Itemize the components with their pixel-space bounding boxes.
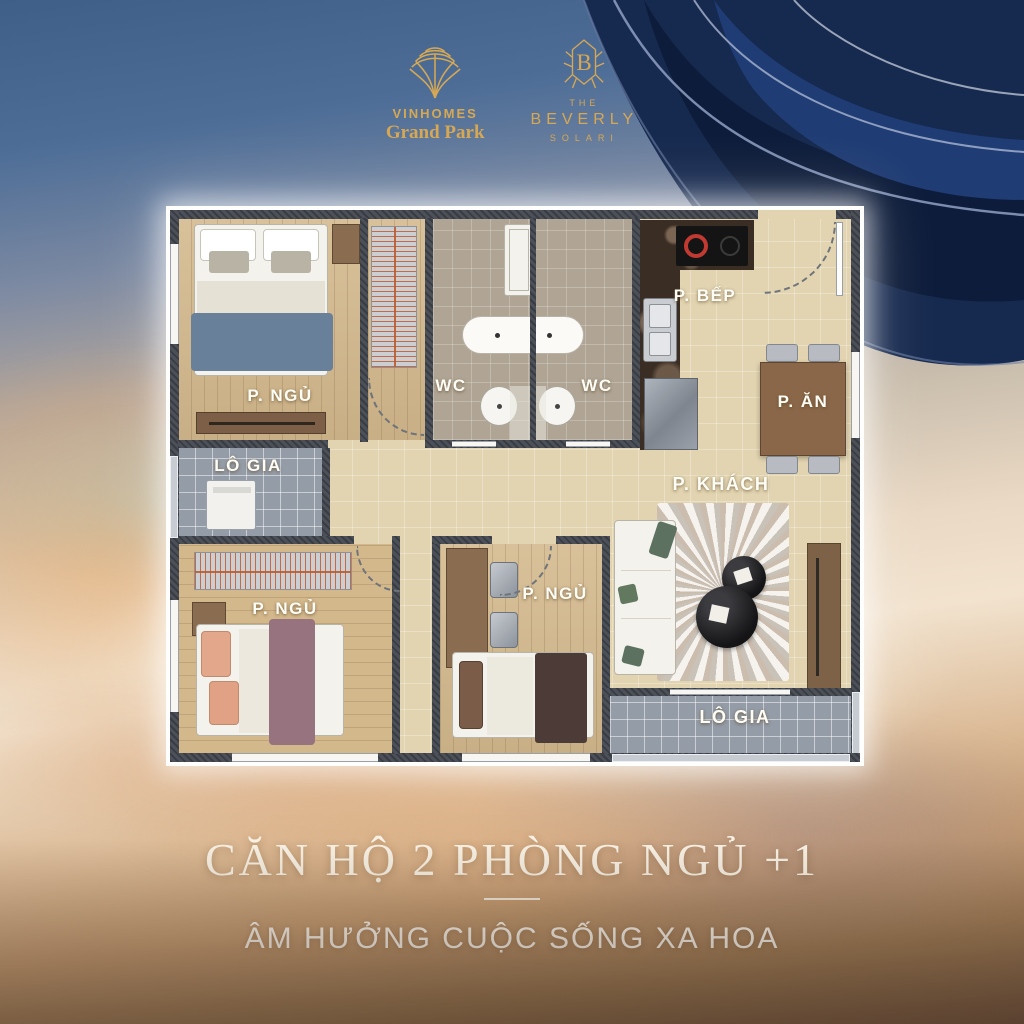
wardrobe-bedroom2 (194, 552, 352, 590)
wc-door-threshold-left (452, 441, 496, 447)
window-bedroom2 (170, 600, 179, 712)
label-loggia-left: LÔ GIA (186, 456, 310, 476)
washing-machine (206, 480, 256, 530)
beverly-monogram: B (577, 50, 592, 75)
dining-chair-2 (808, 344, 840, 362)
bed-single (452, 652, 594, 738)
wall-top (170, 210, 860, 219)
wall-bedroom2-top (178, 536, 354, 544)
wc-door-threshold-right (566, 441, 610, 447)
beverly-emblem-icon: B (561, 38, 607, 92)
label-loggia-right: LÔ GIA (675, 707, 795, 728)
entry-door-leaf (836, 222, 843, 296)
toilet-counter (510, 386, 546, 440)
label-wc-left: WC (428, 376, 474, 396)
railing-loggia-left (170, 456, 178, 538)
bed-double-2 (196, 624, 344, 736)
poster-subtitle: ÂM HƯỞNG CUỘC SỐNG XA HOA (0, 922, 1024, 956)
wall-bedroom3-right (602, 536, 610, 754)
wall-bedroom3-left (432, 536, 440, 754)
window-bedroom2-bottom (232, 753, 378, 762)
sofa (614, 520, 676, 675)
vanity-counter (462, 316, 584, 354)
vinhomes-logo: VINHOMES Grand Park (386, 38, 485, 144)
coffee-table-large (696, 586, 758, 648)
desk-chair-2 (490, 612, 518, 648)
title-divider (484, 898, 540, 900)
label-bedroom2: P. NGỦ (218, 599, 352, 619)
label-wc-right: WC (574, 376, 620, 396)
wall-bedroom3-top (432, 536, 492, 544)
wall-right (851, 210, 860, 762)
window-bedroom3-bottom (462, 753, 590, 762)
dining-chair-1 (766, 344, 798, 362)
loggia-slider (670, 689, 790, 695)
bed-double-1 (194, 224, 328, 376)
fridge (644, 378, 698, 450)
wall-wc-left (425, 218, 433, 442)
grand-park-wordmark: Grand Park (386, 122, 485, 144)
vinhomes-wordmark: VINHOMES (393, 106, 478, 121)
label-dining: P. ĂN (760, 392, 846, 412)
railing-loggia-right-bottom (612, 754, 850, 762)
floor-plan: P. NGỦ LÔ GIA WC WC P. BẾP P. ĂN P. KHÁC… (166, 206, 864, 766)
beverly-wordmark: BEVERLY (531, 111, 639, 129)
railing-loggia-right-side (852, 692, 860, 754)
label-bedroom1: P. NGỦ (210, 386, 350, 406)
solari-wordmark: SOLARI (550, 133, 619, 143)
wall-wc-divider (530, 218, 536, 442)
wall-bedroom1-right (360, 218, 368, 442)
nightstand-1 (332, 224, 360, 264)
dining-chair-3 (766, 456, 798, 474)
dresser-1 (196, 412, 326, 434)
wall-wc-right (632, 218, 640, 442)
wall-loggia-left-right (322, 448, 330, 544)
poster: VINHOMES Grand Park B THE BEVERLY SOLARI (0, 0, 1024, 1024)
dining-chair-4 (808, 456, 840, 474)
label-bedroom3: P. NGỦ (500, 584, 610, 604)
window-bedroom1 (170, 244, 179, 344)
kitchen-sink (643, 298, 677, 362)
poster-title: CĂN HỘ 2 PHÒNG NGỦ +1 (0, 833, 1024, 886)
beverly-logo: B THE BEVERLY SOLARI (531, 38, 639, 144)
label-living: P. KHÁCH (656, 474, 786, 495)
entry-opening (758, 210, 836, 219)
door-entry (762, 222, 836, 294)
label-kitchen: P. BẾP (660, 286, 750, 306)
beverly-the: THE (569, 98, 599, 108)
wall-bedroom1-bottom (178, 440, 328, 448)
window-dining (851, 352, 860, 438)
desk (446, 548, 488, 668)
cooktop (676, 226, 748, 266)
wardrobe-corridor (371, 226, 417, 368)
header-logos: VINHOMES Grand Park B THE BEVERLY SOLARI (0, 38, 1024, 144)
vinhomes-tree-icon (406, 38, 464, 100)
tv-console (807, 543, 841, 691)
